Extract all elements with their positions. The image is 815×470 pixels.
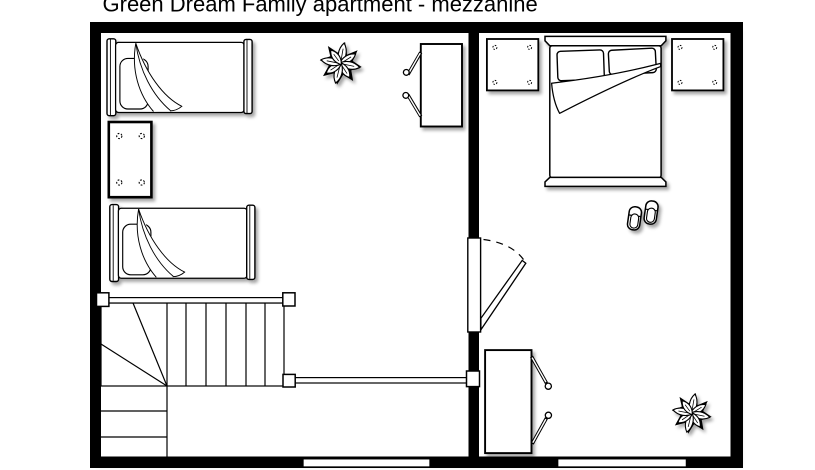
svg-text:Green Dream Family apartment -: Green Dream Family apartment - mezzanine bbox=[103, 0, 538, 16]
